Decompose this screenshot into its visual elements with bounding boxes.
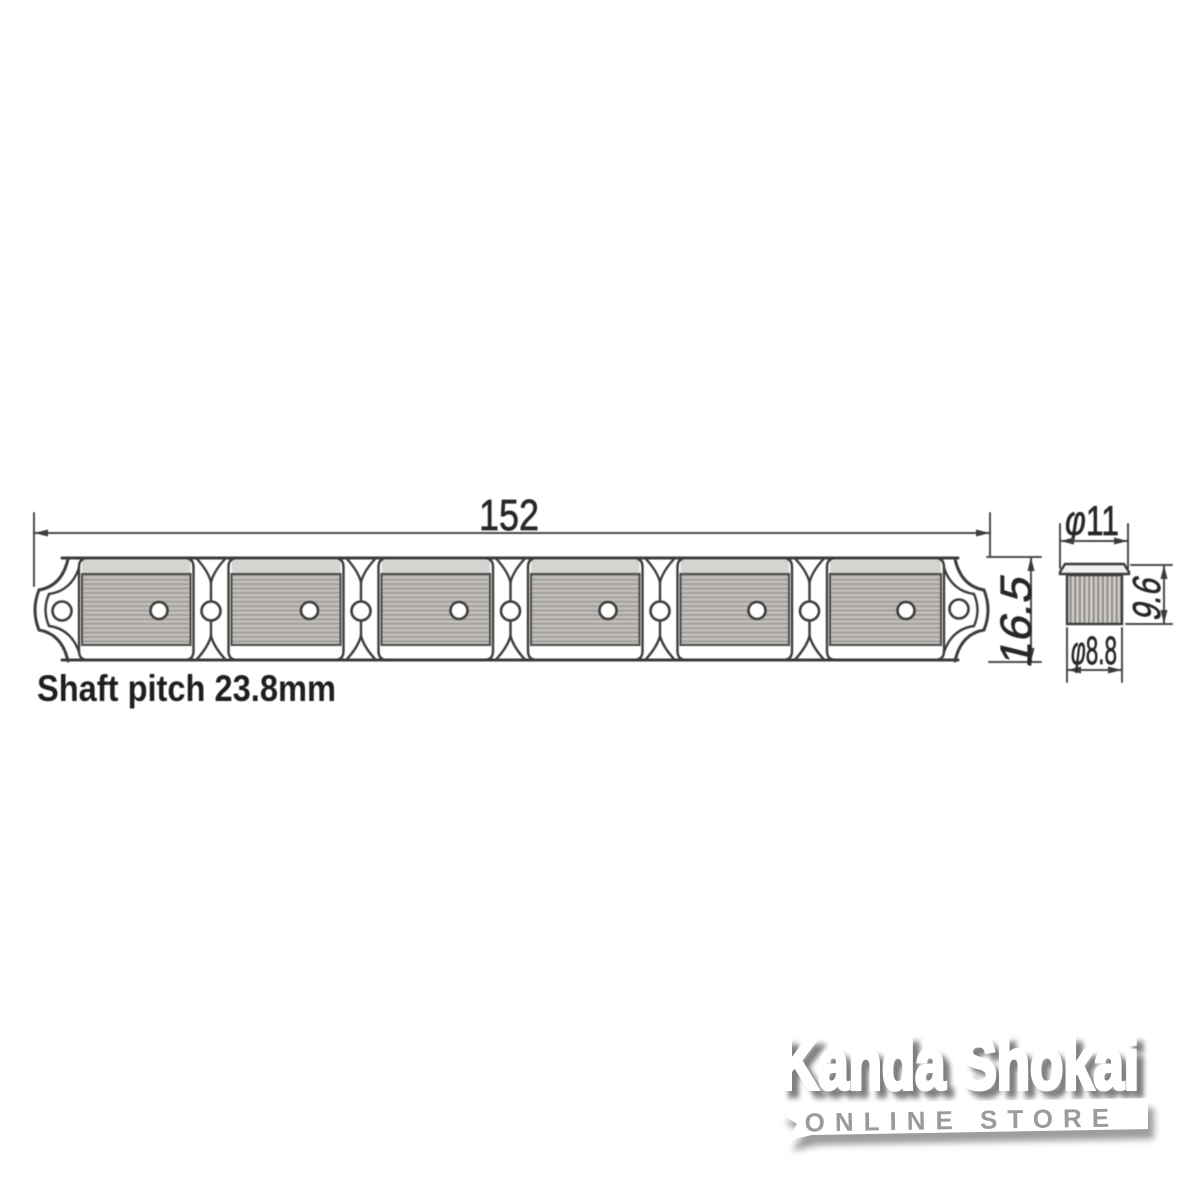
svg-text:φ8.8: φ8.8 (1071, 629, 1117, 673)
svg-text:Kanda Shokai: Kanda Shokai (779, 1024, 1139, 1105)
svg-text:ONLINE STORE: ONLINE STORE (804, 1103, 1119, 1138)
svg-text:16.5: 16.5 (993, 569, 1041, 671)
svg-text:152: 152 (479, 491, 539, 540)
svg-text:Shaft pitch 23.8mm: Shaft pitch 23.8mm (37, 668, 336, 709)
svg-text:9.6: 9.6 (1126, 571, 1169, 624)
svg-text:φ11: φ11 (1065, 497, 1119, 544)
